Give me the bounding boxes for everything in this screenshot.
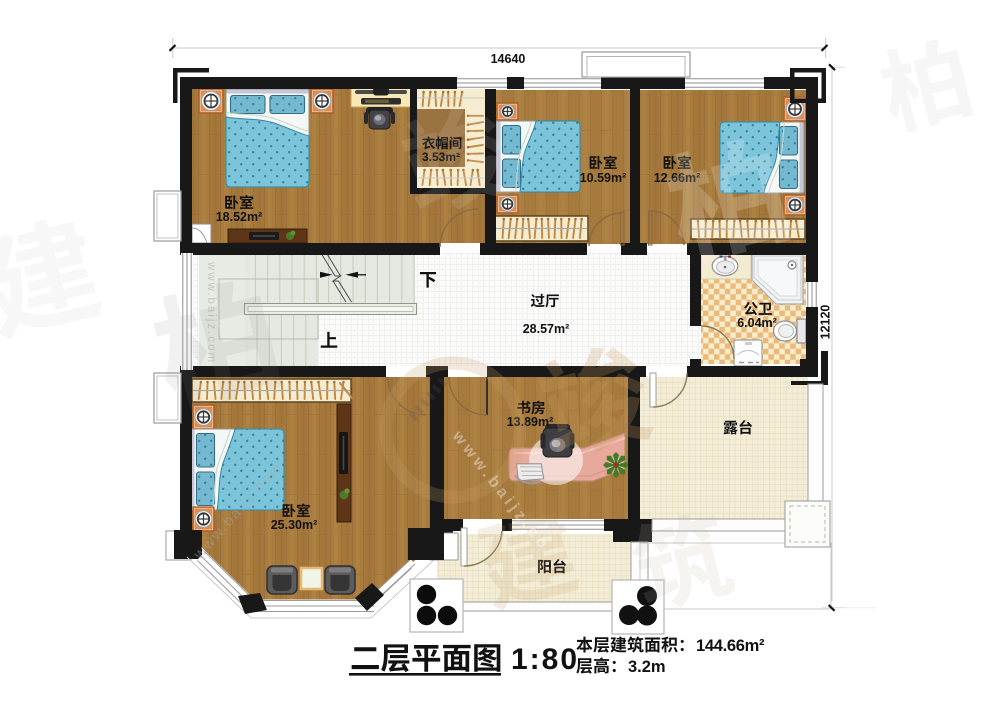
svg-text:1:80: 1:80 bbox=[511, 643, 579, 676]
svg-text:18.52m²: 18.52m² bbox=[216, 210, 263, 224]
svg-text:28.57m²: 28.57m² bbox=[523, 322, 570, 336]
svg-text:25.30m²: 25.30m² bbox=[271, 518, 318, 532]
svg-text:144.66m²: 144.66m² bbox=[696, 637, 765, 655]
svg-text:www.baijz.com: www.baijz.com bbox=[205, 261, 217, 364]
svg-text:14640: 14640 bbox=[491, 52, 526, 66]
svg-text:6.04m²: 6.04m² bbox=[737, 316, 777, 330]
svg-text:3.2m: 3.2m bbox=[628, 658, 666, 676]
svg-text:10.59m²: 10.59m² bbox=[580, 171, 627, 185]
svg-text:12120: 12120 bbox=[819, 305, 833, 340]
